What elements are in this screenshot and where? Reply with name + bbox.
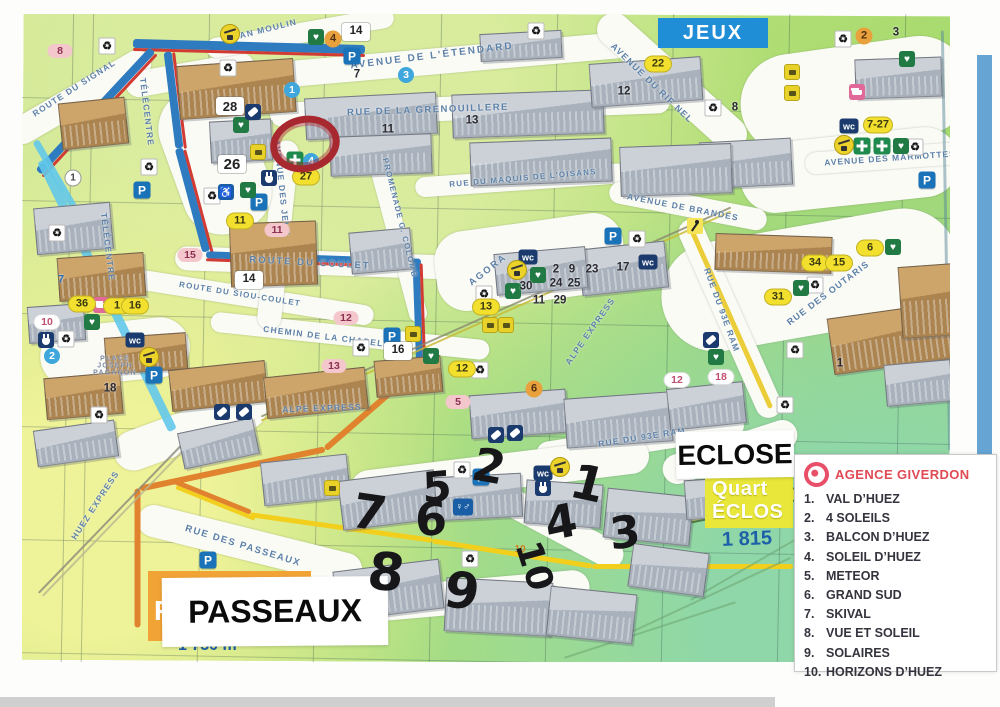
hand-drawn-number-9: 9 bbox=[441, 561, 484, 622]
legend-item: 3.BALCON D’HUEZ bbox=[804, 528, 987, 547]
legend-item-number: 5. bbox=[804, 567, 826, 586]
red-circle-annotation bbox=[265, 109, 345, 178]
legend-item-name: GRAND SUD bbox=[826, 586, 902, 605]
hand-drawn-number-2: 2 bbox=[467, 437, 511, 495]
legend-item-number: 10. bbox=[804, 663, 826, 682]
agence-giverdon-logo-icon bbox=[800, 458, 833, 491]
legend-item: 10.HORIZONS D’HUEZ bbox=[804, 663, 987, 682]
legend-item: 2.4 SOLEILS bbox=[804, 509, 987, 528]
legend-item: 6.GRAND SUD bbox=[804, 586, 987, 605]
legend-panel: AGENCE GIVERDON 1.VAL D’HUEZ2.4 SOLEILS3… bbox=[794, 454, 997, 672]
legend-title: AGENCE GIVERDON bbox=[835, 467, 970, 482]
legend-item-name: HORIZONS D’HUEZ bbox=[826, 663, 942, 682]
legend-item-number: 8. bbox=[804, 624, 826, 643]
legend-item-name: SKIVAL bbox=[826, 605, 871, 624]
scanned-resort-map: JEAN MOULINAVENUE DE L'ÉTENDARDRUE DE LA… bbox=[0, 0, 1000, 707]
legend-residence-list: 1.VAL D’HUEZ2.4 SOLEILS3.BALCON D’HUEZ4.… bbox=[804, 490, 987, 682]
page-edge-blue-strip bbox=[977, 55, 992, 467]
legend-item-name: METEOR bbox=[826, 567, 879, 586]
legend-item-name: VUE ET SOLEIL bbox=[826, 624, 920, 643]
legend-item-number: 6. bbox=[804, 586, 826, 605]
legend-item-number: 9. bbox=[804, 644, 826, 663]
legend-item: 8.VUE ET SOLEIL bbox=[804, 624, 987, 643]
legend-item-number: 7. bbox=[804, 605, 826, 624]
legend-header: AGENCE GIVERDON bbox=[804, 462, 987, 487]
legend-item-name: SOLEIL D’HUEZ bbox=[826, 548, 921, 567]
scan-edge bbox=[0, 697, 775, 707]
legend-item: 4.SOLEIL D’HUEZ bbox=[804, 548, 987, 567]
legend-item: 1.VAL D’HUEZ bbox=[804, 490, 987, 509]
legend-item-name: VAL D’HUEZ bbox=[826, 490, 900, 509]
legend-item-number: 1. bbox=[804, 490, 826, 509]
legend-item-number: 2. bbox=[804, 509, 826, 528]
legend-item-number: 4. bbox=[804, 548, 826, 567]
hand-drawn-number-8: 8 bbox=[364, 542, 408, 605]
legend-item-name: BALCON D’HUEZ bbox=[826, 528, 929, 547]
legend-item: 9.SOLAIRES bbox=[804, 644, 987, 663]
hand-drawn-number-3: 3 bbox=[608, 505, 643, 560]
legend-item-number: 3. bbox=[804, 528, 826, 547]
legend-item: 7.SKIVAL bbox=[804, 605, 987, 624]
legend-item-name: 4 SOLEILS bbox=[826, 509, 890, 528]
hand-drawn-number-7: 7 bbox=[347, 483, 391, 543]
legend-item: 5.METEOR bbox=[804, 567, 987, 586]
hand-drawn-number-6: 6 bbox=[414, 491, 448, 548]
legend-item-name: SOLAIRES bbox=[826, 644, 890, 663]
